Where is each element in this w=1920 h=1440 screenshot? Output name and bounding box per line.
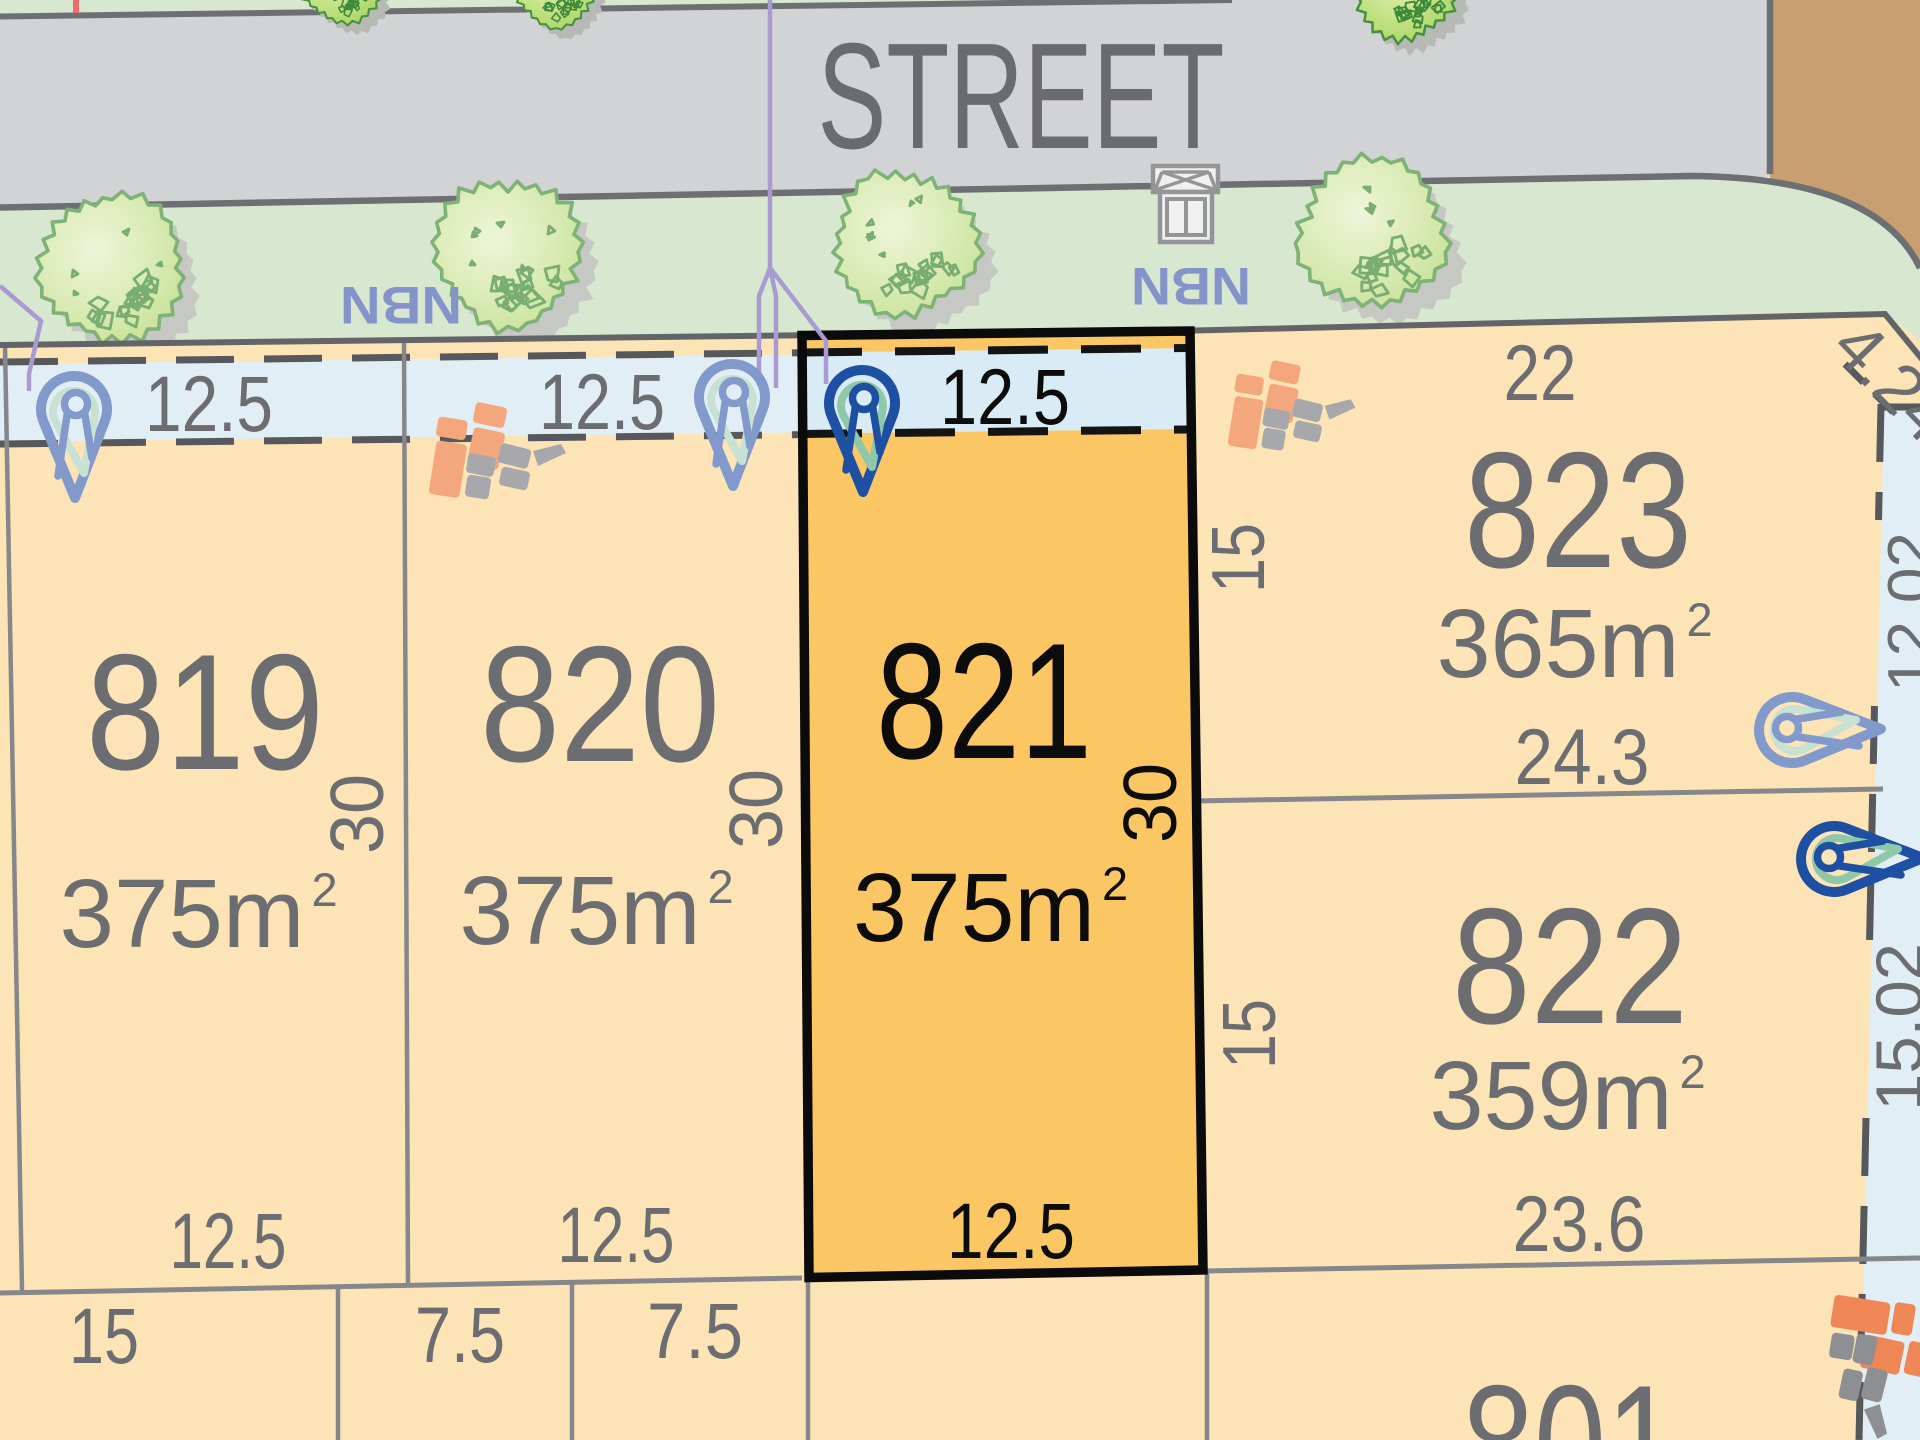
svg-text:12.5: 12.5 xyxy=(170,1196,287,1285)
svg-text:15: 15 xyxy=(1207,999,1291,1069)
svg-text:NBN: NBN xyxy=(340,275,462,334)
svg-text:7.5: 7.5 xyxy=(647,1286,743,1375)
svg-text:12.5: 12.5 xyxy=(947,1186,1075,1275)
svg-text:801: 801 xyxy=(1462,1351,1678,1440)
svg-text:12.02: 12.02 xyxy=(1876,532,1920,692)
svg-text:2: 2 xyxy=(708,860,734,913)
svg-text:STREET: STREET xyxy=(818,11,1225,180)
svg-text:12.5: 12.5 xyxy=(940,352,1070,441)
svg-text:375m: 375m xyxy=(853,853,1095,962)
svg-text:30: 30 xyxy=(1108,763,1192,843)
svg-text:2: 2 xyxy=(1680,1045,1706,1098)
svg-text:12.5: 12.5 xyxy=(539,357,665,446)
svg-text:821: 821 xyxy=(876,609,1092,793)
svg-text:12.5: 12.5 xyxy=(558,1190,675,1279)
svg-text:375m: 375m xyxy=(460,856,701,965)
svg-text:15: 15 xyxy=(1196,523,1280,593)
svg-text:822: 822 xyxy=(1452,874,1688,1058)
svg-text:359m: 359m xyxy=(1430,1041,1673,1150)
svg-text:7.5: 7.5 xyxy=(415,1290,505,1379)
svg-text:365m: 365m xyxy=(1437,589,1680,698)
svg-text:NBN: NBN xyxy=(1131,256,1251,315)
svg-text:2: 2 xyxy=(1102,857,1128,910)
svg-text:819: 819 xyxy=(86,620,324,804)
svg-text:15.02: 15.02 xyxy=(1862,943,1920,1111)
svg-text:2: 2 xyxy=(1687,593,1713,646)
svg-text:22: 22 xyxy=(1504,328,1577,417)
svg-text:2: 2 xyxy=(312,863,338,916)
svg-text:12.5: 12.5 xyxy=(145,359,273,448)
svg-text:375m: 375m xyxy=(60,859,305,968)
svg-text:24.3: 24.3 xyxy=(1515,712,1650,801)
svg-text:15: 15 xyxy=(69,1291,139,1380)
svg-text:823: 823 xyxy=(1464,418,1692,602)
svg-text:820: 820 xyxy=(480,612,720,796)
svg-text:30: 30 xyxy=(315,774,399,854)
svg-text:23.6: 23.6 xyxy=(1513,1179,1646,1268)
svg-text:30: 30 xyxy=(714,769,798,849)
